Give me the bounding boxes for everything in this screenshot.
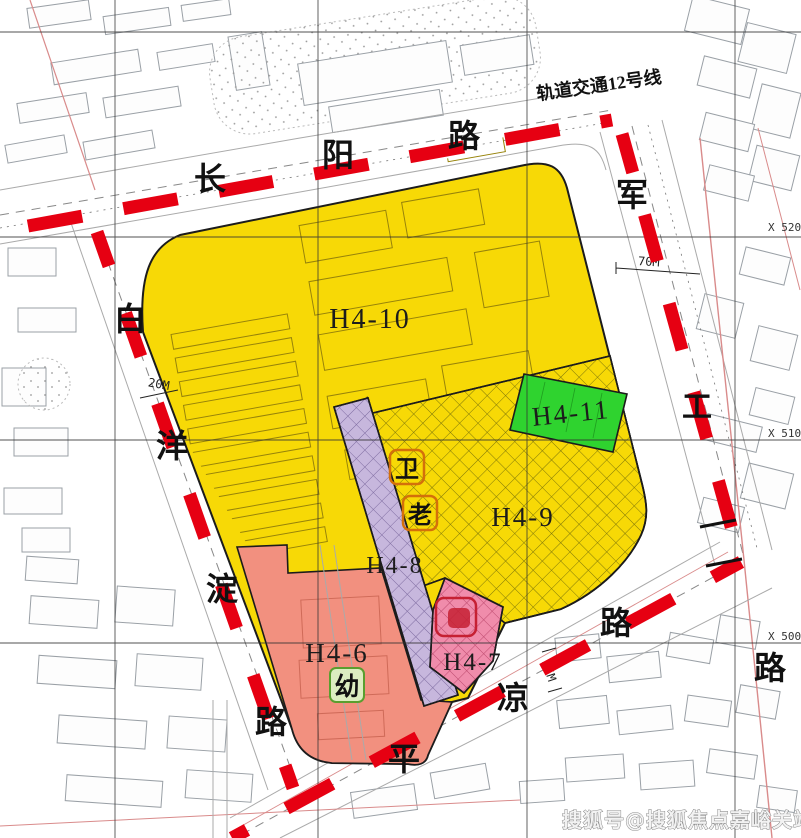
road-jungong-char2: 工 <box>682 391 712 424</box>
grid-label-x5100: X 5100 <box>768 427 801 440</box>
road-pingliang-char2: 凉 <box>497 680 529 716</box>
grid-label-x5000: X 5000 <box>768 630 801 643</box>
road-baiyangdian-char4: 路 <box>255 704 288 740</box>
road-baiyangdian-char3: 淀 <box>206 571 238 607</box>
label-h4-6: H4-6 <box>305 638 369 668</box>
label-h4-7: H4-7 <box>443 649 502 676</box>
watermark: 搜狐号@搜狐焦点嘉峪关站 <box>562 808 801 832</box>
label-h4-9: H4-9 <box>491 502 555 532</box>
label-h4-10: H4-10 <box>329 304 411 335</box>
road-changyang-char2: 阳 <box>322 137 354 173</box>
background-buildings-bottomright <box>519 615 797 813</box>
site-parcels <box>142 119 646 765</box>
planning-map: X 5200 X 5100 X 5000 20M 70M 35M 轨道交通12号… <box>0 0 801 838</box>
grid-label-x5200: X 5200 <box>768 221 801 234</box>
background-buildings-topright <box>685 0 801 201</box>
road-changyang-char3: 路 <box>448 118 481 154</box>
road-pingliang-char3: 路 <box>600 605 633 641</box>
road-jungong-char1: 军 <box>616 177 648 213</box>
background-buildings-left <box>2 248 76 552</box>
road-baiyangdian-char1: 白 <box>114 301 146 337</box>
road-jungong-char3: 路 <box>754 650 787 686</box>
symbol-health-char: 卫 <box>395 457 419 483</box>
symbol-elderly-char: 老 <box>408 502 432 529</box>
road-changyang-char1: 长 <box>194 161 226 197</box>
dim-20m: 20M <box>147 375 171 393</box>
background-buildings-right <box>696 247 798 533</box>
road-baiyangdian-char2: 洋 <box>156 428 188 464</box>
label-h4-8: H4-8 <box>366 553 423 579</box>
symbol-kindergarten-char: 幼 <box>334 673 359 701</box>
symbol-kindergarten: 幼 <box>330 668 364 702</box>
rail-line-label: 轨道交通12号线 <box>535 66 663 104</box>
road-pingliang-char1: 平 <box>388 741 420 777</box>
